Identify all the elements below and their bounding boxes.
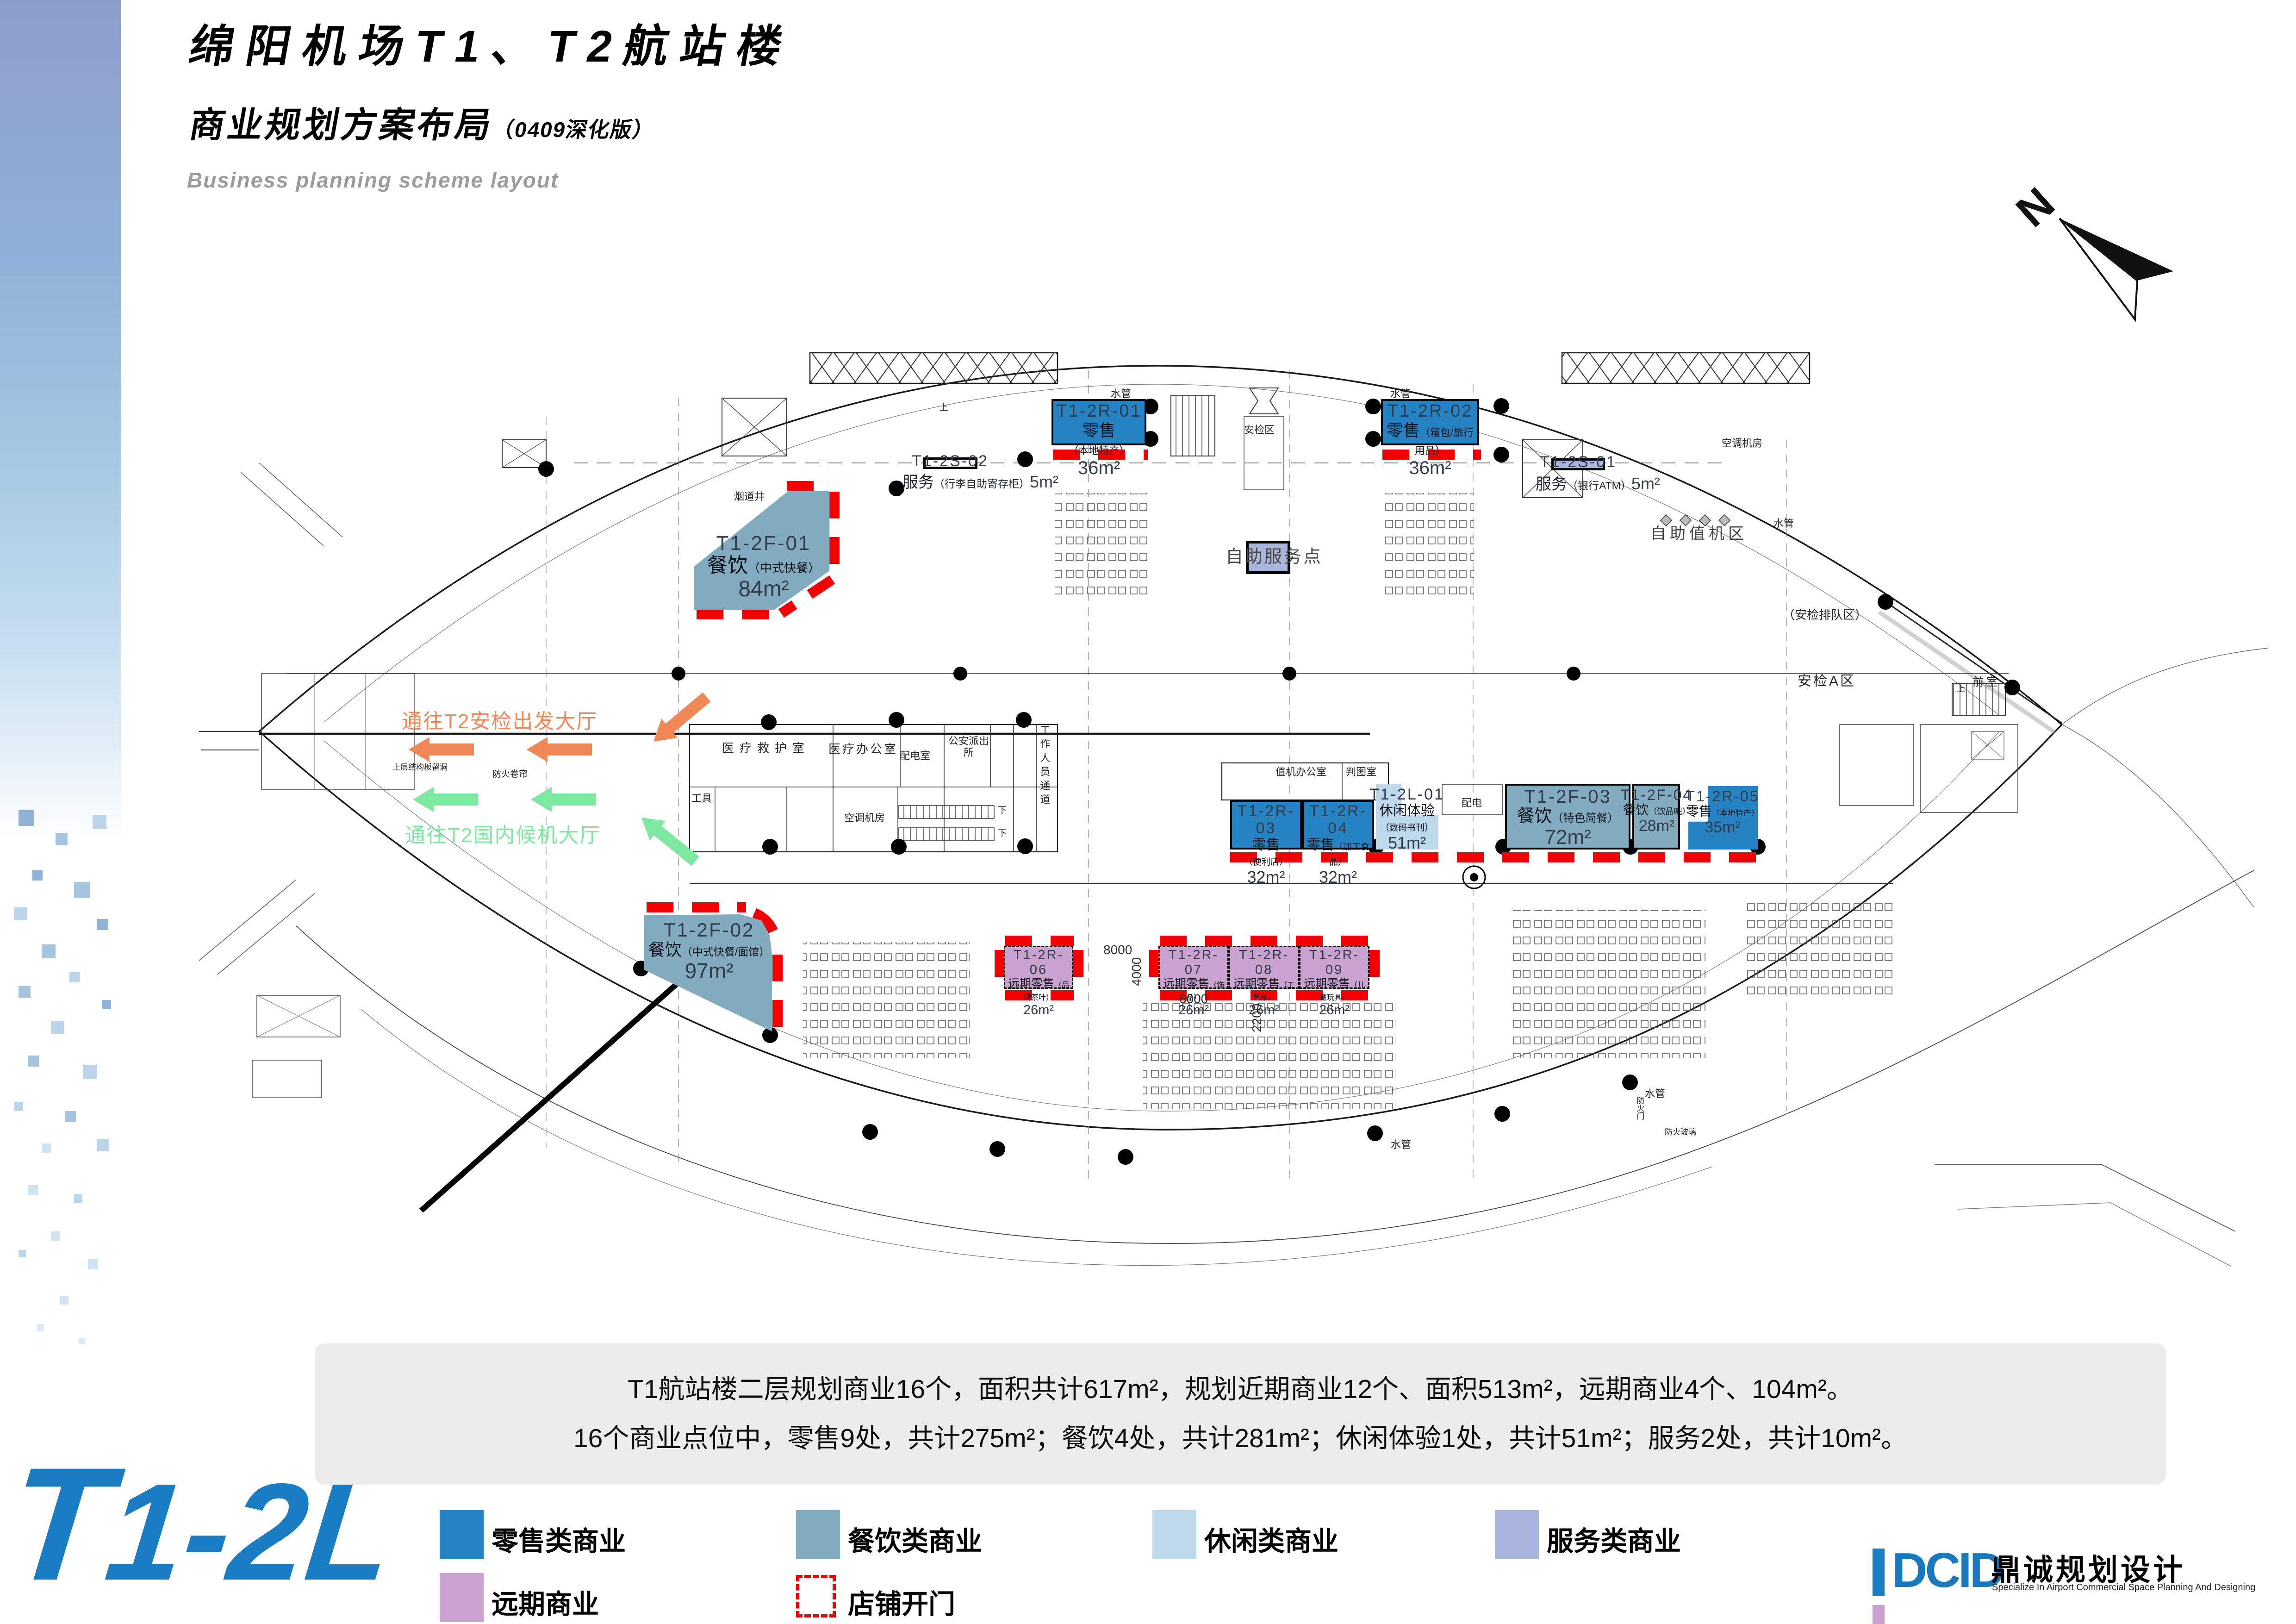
shop-T1-2F-04-label: T1-2F-04 餐饮（饮品吧） 28m²: [1616, 787, 1697, 835]
legend-swatch-service: [1495, 1510, 1539, 1559]
dimension-label: 6000: [1179, 992, 1208, 1006]
shop-T1-2R-08: T1-2R-08 远期零售（工艺品） 26m²: [1229, 946, 1299, 989]
dimension-label: 4000: [1129, 957, 1144, 986]
legend-label-future: 远期商业: [492, 1582, 599, 1621]
room-label: 前室: [1972, 676, 2000, 689]
footer-accent-bar-pink: [1873, 1605, 1885, 1624]
room-label: 防火卷帘: [492, 769, 528, 780]
room-label: 医疗办公室: [828, 743, 898, 756]
legend-swatch-open-door: [796, 1575, 836, 1618]
legend-label-food: 餐饮类商业: [848, 1519, 982, 1558]
room-label: 安检区: [1244, 424, 1275, 436]
room-label: 防火门: [1635, 1096, 1644, 1120]
legend-label-service: 服务类商业: [1547, 1519, 1681, 1558]
dimension-label: 2200: [1250, 1004, 1264, 1032]
room-label: 防火玻璃: [1665, 1128, 1696, 1137]
room-label: 水管: [1111, 388, 1131, 400]
dcid-logo-tagline: Specialize In Airport Commercial Space P…: [1992, 1582, 2255, 1593]
shop-T1-2F-02-label: T1-2F-02 餐饮（中式快餐/面馆） 97m²: [644, 919, 774, 982]
legend-label-leisure: 休闲类商业: [1204, 1519, 1338, 1558]
shop-T1-2R-03: T1-2R-03 零售（便利店） 32m²: [1230, 800, 1302, 849]
shop-T1-2F-01-label: T1-2F-01 餐饮（中式快餐） 84m²: [692, 532, 835, 602]
dimension-label: 8000: [1103, 943, 1132, 957]
legend-swatch-leisure: [1152, 1510, 1196, 1559]
legend-swatch-future: [440, 1573, 484, 1622]
legend-swatch-food: [796, 1510, 840, 1559]
shop-T1-2R-01: T1-2R-01 零售（本地特产） 36m²: [1052, 399, 1146, 445]
shop-T1-2R-09: T1-2R-09 远期零售（儿童玩具） 26m²: [1299, 946, 1369, 989]
shop-T1-2R-07: T1-2R-07 远期零售（饰品） 26m²: [1158, 946, 1229, 989]
stair-label: 上: [1957, 684, 1966, 694]
stair-label: 下: [998, 806, 1007, 816]
dcid-logo: DCID: [1892, 1543, 2003, 1599]
room-label: 公安派出所: [946, 735, 991, 759]
shop-T1-2R-05-label: T1-2R-05 零售（本地特产） 35m²: [1686, 788, 1760, 836]
self-service-point-label: 自助服务点: [1226, 547, 1323, 568]
shop-T1-2S-02-label: 服务（行李自助寄存柜）5m²: [902, 469, 1058, 492]
shop-T1-2F-03: T1-2F-03 餐饮（特色简餐） 72m²: [1505, 784, 1630, 849]
room-label: 值机办公室: [1276, 766, 1326, 778]
wayfinding-to-t2-security: 通往T2安检出发大厅: [402, 705, 597, 734]
shop-T1-2R-06: T1-2R-06 远期零售（品牌茶叶） 26m²: [1004, 946, 1073, 989]
stair-label: 上: [940, 403, 948, 413]
room-label: 空调机房: [844, 812, 885, 824]
shop-T1-2S-01-id: T1-2S-01: [1539, 454, 1618, 471]
self-checkin-area-label: 自助值机区: [1650, 525, 1748, 543]
shop-T1-2S-01-label: 服务（银行ATM）5m²: [1536, 471, 1660, 494]
stair-label: 下: [998, 829, 1007, 839]
wayfinding-to-t2-domestic: 通往T2国内候机大厅: [405, 818, 601, 848]
room-label: 配电室: [900, 750, 930, 762]
floor-code: T1-2L: [2, 1443, 401, 1605]
room-label: 烟道井: [734, 491, 765, 502]
room-label: 工作人员通道: [1039, 725, 1050, 808]
footer-accent-bar-blue: [1873, 1549, 1885, 1596]
room-label: 判图室: [1346, 766, 1376, 778]
room-label: 水管: [1390, 388, 1411, 400]
shop-T1-2L-01-label: T1-2L-01 休闲体验（数码书刊） 51m²: [1354, 786, 1460, 852]
room-label: 水管: [1645, 1088, 1665, 1099]
room-label: 水管: [1773, 518, 1794, 529]
room-label: 水管: [1391, 1139, 1411, 1150]
room-label: 空调机房: [1722, 437, 1762, 449]
shop-T1-2S-02-id: T1-2S-02: [911, 453, 989, 470]
shop-T1-2R-02: T1-2R-02 零售（箱包/旅行用品） 36m²: [1381, 399, 1479, 445]
legend-label-open-door: 店铺开门: [848, 1582, 955, 1621]
summary-line-2: 16个商业点位中，零售9处，共计275m²；餐饮4处，共计281m²；休闲体验1…: [573, 1414, 1907, 1463]
security-queue-label: （安检排队区）: [1783, 608, 1867, 622]
room-label: 工具: [691, 793, 712, 804]
room-label: 医疗救护室: [722, 742, 810, 756]
legend-swatch-retail: [440, 1510, 484, 1559]
legend-label-retail: 零售类商业: [492, 1519, 626, 1558]
room-label: 上层结构板留洞: [392, 763, 448, 772]
room-label: 配电: [1462, 797, 1482, 809]
summary-panel: T1航站楼二层规划商业16个，面积共计617m²，规划近期商业12个、面积513…: [315, 1343, 2166, 1485]
summary-line-1: T1航站楼二层规划商业16个，面积共计617m²，规划近期商业12个、面积513…: [628, 1365, 1853, 1414]
security-a-zone-label: 安检A区: [1798, 674, 1856, 690]
